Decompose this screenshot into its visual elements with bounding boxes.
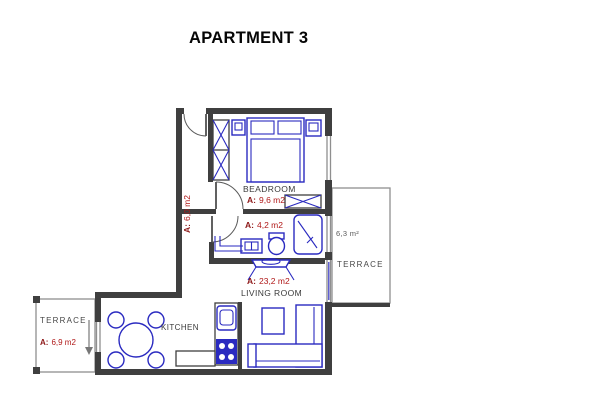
terrace-left-floor <box>33 296 95 374</box>
terrace-left-area-label: A:6,9 m2 <box>40 339 76 347</box>
dresser-icon <box>285 195 321 208</box>
terrace-right-floor <box>332 188 390 307</box>
bed-icon <box>247 118 304 182</box>
coffee-table-icon <box>262 308 284 334</box>
terrace-access-arrow-icon <box>85 320 93 355</box>
stove-icon <box>216 339 237 364</box>
dining-table-icon <box>108 312 164 368</box>
bedroom-label: BEADROOM <box>243 185 296 194</box>
sink-icon <box>241 239 262 253</box>
toilet-icon <box>269 233 285 255</box>
terrace-sliding-door <box>327 260 331 302</box>
bathroom-area-label: A:4,2 m2 <box>245 221 283 230</box>
terrace-right-label: TERRACE <box>337 261 384 269</box>
bathroom-door <box>212 216 238 242</box>
bathroom-window <box>327 216 331 252</box>
nightstand-left-icon <box>232 120 245 135</box>
hallway-area-label: A:6,0 m2 <box>183 195 192 233</box>
kitchen-sink-icon <box>217 306 236 330</box>
terrace-right-size-label: 6,3 m² <box>336 230 359 238</box>
living-room-label: LIVING ROOM <box>241 289 302 298</box>
floor-plan-page: APARTMENT 3 <box>0 0 600 410</box>
sofa-icon <box>248 305 322 367</box>
shower-icon <box>294 215 322 254</box>
wardrobe-icon <box>213 120 229 180</box>
kitchen-label: KITCHEN <box>161 324 199 332</box>
bedroom-door <box>216 182 243 209</box>
terrace-left-label: TERRACE <box>40 317 87 325</box>
bedroom-window <box>327 136 331 180</box>
kitchen-window <box>97 322 101 352</box>
bedroom-area-label: A:9,6 m2 <box>247 196 285 205</box>
nightstand-right-icon <box>306 120 321 136</box>
bath-shelf-icon <box>215 236 243 251</box>
living-room-area-label: A:23,2 m2 <box>247 277 290 286</box>
floor-plan-drawing <box>0 0 600 410</box>
entry-door <box>184 114 206 136</box>
